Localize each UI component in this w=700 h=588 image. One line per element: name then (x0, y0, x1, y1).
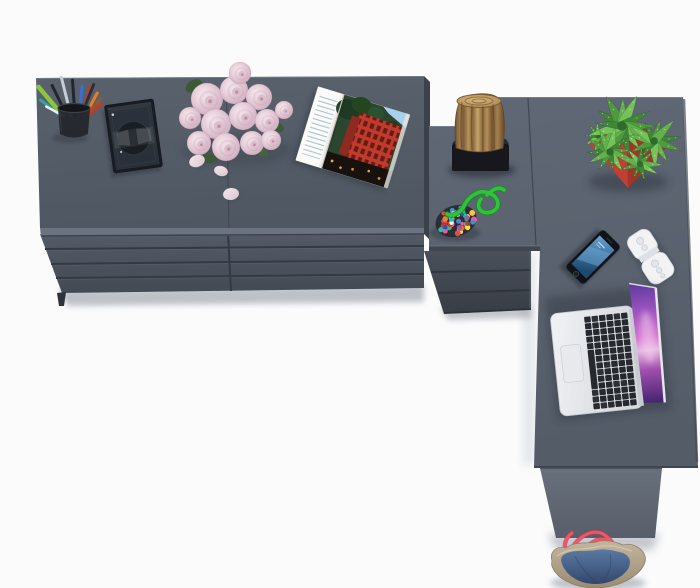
desk-leg-panel (540, 468, 662, 538)
product-photo-stage (0, 0, 700, 588)
photo-frame (102, 100, 162, 177)
return-front-edge (429, 246, 540, 251)
laptop-trackpad (560, 344, 584, 383)
laptop (545, 281, 672, 421)
scene-canvas (0, 0, 700, 588)
